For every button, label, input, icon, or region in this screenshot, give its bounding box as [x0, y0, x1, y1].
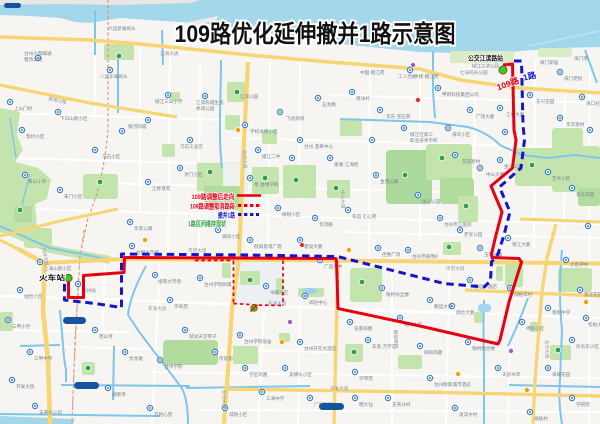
svg-text:学研苑: 学研苑: [576, 401, 590, 408]
svg-text:休闲公园: 休闲公园: [196, 105, 215, 112]
svg-text:华景公寓: 华景公寓: [134, 225, 153, 232]
svg-text:佳惠广场: 佳惠广场: [382, 251, 401, 258]
svg-text:景·金球学校: 景·金球学校: [254, 181, 279, 188]
svg-text:茶山小学: 茶山小学: [28, 178, 47, 185]
svg-text:伏龙墩: 伏龙墩: [129, 355, 143, 362]
svg-text:梅门新居: 梅门新居: [540, 59, 559, 66]
svg-text:五龙路: 五龙路: [322, 101, 336, 108]
svg-text:乌石小区: 乌石小区: [102, 153, 121, 160]
svg-text:福怡小区: 福怡小区: [24, 293, 43, 300]
svg-text:学校水库小区: 学校水库小区: [250, 128, 278, 135]
svg-text:椒江江滨公园: 椒江江滨公园: [472, 63, 499, 70]
svg-text:景元花园: 景元花园: [584, 291, 600, 298]
svg-text:台州市被用Ě: 台州市被用Ě: [412, 252, 438, 260]
svg-text:银江大厦: 银江大厦: [512, 241, 531, 248]
svg-text:东海大道: 东海大道: [148, 305, 167, 312]
svg-text:台州学院宿舍: 台州学院宿舍: [244, 338, 272, 345]
svg-text:撤并1路: 撤并1路: [218, 211, 235, 220]
svg-text:租赁公司: 租赁公司: [24, 56, 43, 63]
svg-text:南洋村: 南洋村: [356, 95, 370, 102]
svg-text:老军公园: 老军公园: [464, 231, 483, 238]
svg-text:飞龙商场: 飞龙商场: [286, 115, 305, 122]
svg-text:海门老街: 海门老街: [564, 75, 583, 82]
svg-text:台州开元大酒店: 台州开元大酒店: [304, 345, 337, 352]
svg-text:东运·汇心苑: 东运·汇心苑: [352, 213, 377, 220]
svg-text:开发大道: 开发大道: [16, 383, 35, 390]
svg-text:华东·宝石苑: 华东·宝石苑: [386, 113, 411, 120]
svg-text:台州·圣奇中心: 台州·圣奇中心: [304, 143, 333, 150]
svg-text:台州小帮脚通: 台州小帮脚通: [24, 50, 52, 57]
svg-text:绵舒小区: 绵舒小区: [526, 325, 545, 332]
svg-text:银柯坊全楼: 银柯坊全楼: [386, 291, 409, 298]
svg-text:御柏华村: 御柏华村: [514, 291, 533, 298]
svg-text:书郁小区: 书郁小区: [270, 289, 289, 296]
svg-text:建设大厦: 建设大厦: [304, 243, 323, 250]
svg-text:伏前街: 伏前街: [219, 355, 233, 362]
svg-text:发淇乡村: 发淇乡村: [459, 411, 478, 418]
svg-text:海口村: 海口村: [586, 100, 600, 107]
svg-text:恒心公园: 恒心公园: [422, 198, 441, 205]
svg-text:椒南大市场: 椒南大市场: [158, 278, 181, 285]
svg-text:中建·椒江苑: 中建·椒江苑: [414, 73, 439, 80]
svg-text:学商苑: 学商苑: [174, 303, 188, 310]
svg-text:1路区间维持现状: 1路区间维持现状: [188, 219, 226, 228]
svg-text:109路调整取消路段: 109路调整取消路段: [190, 202, 235, 211]
svg-text:台州税家城市酒店: 台州税家城市酒店: [434, 381, 471, 388]
svg-text:洪门小区: 洪门小区: [184, 171, 203, 178]
svg-text:景乐花园: 景乐花园: [576, 191, 595, 198]
svg-text:工人西路: 工人西路: [398, 73, 417, 80]
svg-text:江畔景苑: 江畔景苑: [152, 185, 171, 192]
svg-text:市府大道: 市府大道: [188, 247, 207, 254]
svg-text:城防小区: 城防小区: [229, 411, 248, 418]
svg-text:海门港: 海门港: [574, 55, 588, 62]
svg-text:三甲小学: 三甲小学: [12, 323, 31, 330]
svg-text:台州学院: 台州学院: [164, 363, 183, 370]
svg-text:伶乐华小区: 伶乐华小区: [576, 343, 599, 350]
svg-text:109路优化延伸撤并1路示意图: 109路优化延伸撤并1路示意图: [175, 20, 456, 48]
svg-text:花园新村: 花园新村: [462, 158, 481, 165]
svg-text:广场大厦: 广场大厦: [476, 113, 495, 120]
svg-text:东海大道: 东海大道: [268, 300, 287, 307]
svg-text:支英分公司: 支英分公司: [39, 409, 62, 416]
svg-text:名家商圈: 名家商圈: [354, 325, 373, 332]
svg-text:阅达中心: 阅达中心: [309, 299, 328, 306]
svg-text:上海山新小区: 上海山新小区: [44, 265, 72, 272]
svg-text:御达大厦: 御达大厦: [456, 309, 475, 316]
svg-text:华顶路: 华顶路: [319, 221, 333, 228]
svg-text:艺术小区: 艺术小区: [552, 175, 571, 182]
svg-text:椒橙小区: 椒橙小区: [282, 211, 301, 218]
svg-text:湖深小区: 湖深小区: [222, 233, 241, 240]
svg-text:109路调整后走向: 109路调整后走向: [192, 192, 235, 201]
svg-text:公交江滨路站: 公交江滨路站: [468, 54, 503, 63]
svg-text:广运祥中: 广运祥中: [324, 263, 343, 270]
svg-text:椒江三山小学: 椒江三山小学: [155, 98, 183, 105]
svg-text:椒江区第三: 椒江区第三: [410, 131, 433, 138]
svg-text:朝运大厦: 朝运大厦: [434, 303, 453, 310]
svg-text:市府大道: 市府大道: [446, 265, 465, 272]
svg-text:椒江二中: 椒江二中: [262, 153, 281, 160]
svg-text:大臣神中: 大臣神中: [570, 261, 589, 268]
svg-text:松柏小区: 松柏小区: [588, 321, 600, 328]
svg-text:中国·椒江苑: 中国·椒江苑: [360, 69, 385, 76]
svg-text:银河商城: 银河商城: [128, 123, 147, 130]
svg-text:金茂公寓: 金茂公寓: [380, 178, 399, 185]
svg-text:就试天堂荷子: 就试天堂荷子: [189, 333, 217, 340]
svg-text:台州学院附属: 台州学院附属: [204, 281, 232, 288]
svg-text:晒大仙: 晒大仙: [359, 401, 373, 408]
svg-text:学区商圈: 学区商圈: [249, 371, 268, 378]
svg-text:三海中学: 三海中学: [266, 395, 285, 402]
svg-text:华丰新村: 华丰新村: [566, 121, 585, 128]
svg-text:甲新科技集团公司: 甲新科技集团公司: [442, 91, 479, 98]
svg-text:六运新湖商头: 六运新湖商头: [108, 25, 136, 32]
svg-text:谢湖·江海壁: 谢湖·江海壁: [334, 161, 359, 168]
svg-text:火车站: 火车站: [39, 273, 65, 282]
svg-text:假如意城广场: 假如意城广场: [254, 243, 282, 250]
svg-text:乌石工业区: 乌石工业区: [180, 143, 203, 150]
svg-text:东兴花园: 东兴花园: [536, 98, 555, 105]
svg-text:朱门小区: 朱门小区: [64, 193, 83, 200]
svg-text:沿海大通: 沿海大通: [160, 50, 179, 57]
svg-text:开发大道: 开发大道: [330, 385, 349, 392]
svg-text:海华小区: 海华小区: [452, 131, 471, 138]
svg-text:职业技术学校: 职业技术学校: [410, 137, 438, 144]
svg-text:银柯经合楼: 银柯经合楼: [472, 345, 495, 352]
svg-text:福陆村: 福陆村: [534, 415, 548, 422]
svg-text:三甲中学: 三甲中学: [34, 355, 53, 362]
svg-text:台州市江医院: 台州市江医院: [444, 221, 472, 228]
svg-text:上山门村: 上山门村: [14, 105, 33, 112]
svg-text:湖景寺: 湖景寺: [112, 391, 126, 398]
svg-text:江滨公园: 江滨公园: [240, 93, 259, 100]
svg-text:硕和商厦: 硕和商厦: [424, 349, 443, 356]
svg-text:学琴苑: 学琴苑: [359, 375, 373, 382]
svg-text:下白山新小区: 下白山新小区: [60, 115, 88, 122]
svg-text:景松中学: 景松中学: [552, 309, 571, 316]
svg-text:七号码头公园: 七号码头公园: [460, 69, 488, 76]
svg-text:美横头小区: 美横头小区: [289, 371, 312, 378]
svg-text:帮村小区: 帮村小区: [26, 133, 45, 140]
svg-text:天舒水岸: 天舒水岸: [502, 371, 521, 378]
svg-text:支英分村: 支英分村: [392, 401, 411, 408]
svg-text:西山寺: 西山寺: [99, 333, 113, 340]
svg-text:八运东湖商头: 八运东湖商头: [100, 73, 128, 80]
svg-text:江滨陈城生态: 江滨陈城生态: [196, 99, 224, 106]
svg-text:万怡心苑: 万怡心苑: [154, 411, 173, 418]
svg-text:海阔花园: 海阔花园: [552, 371, 571, 378]
svg-text:东奥·万学汇: 东奥·万学汇: [372, 343, 397, 350]
